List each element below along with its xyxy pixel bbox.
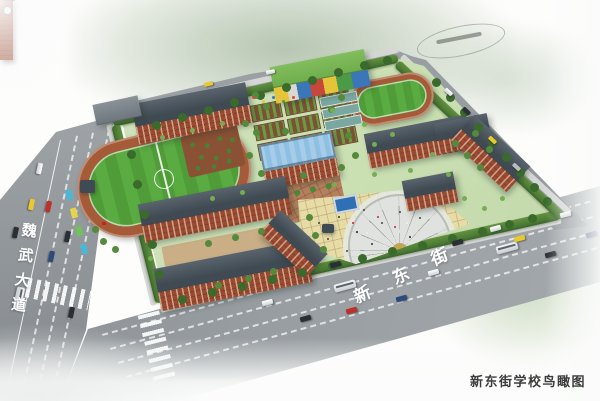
car [64,231,71,243]
car [490,225,502,233]
car [488,135,497,144]
car [346,307,358,315]
car [330,261,342,269]
car [462,106,471,115]
image-caption: 新东街学校鸟瞰图 [470,371,586,390]
mist-right-fade [545,0,600,401]
car [514,235,526,243]
car [444,87,453,96]
mist-bottom-left [0,295,280,401]
car [266,69,276,75]
bus [495,241,518,254]
car [300,315,312,323]
car [512,162,521,171]
car [48,251,55,263]
car [396,295,408,303]
aerial-rendering: 魏武大道 新东街 新东街学校鸟瞰图 [0,0,600,401]
car [204,81,214,87]
mist-top-left [0,0,160,210]
